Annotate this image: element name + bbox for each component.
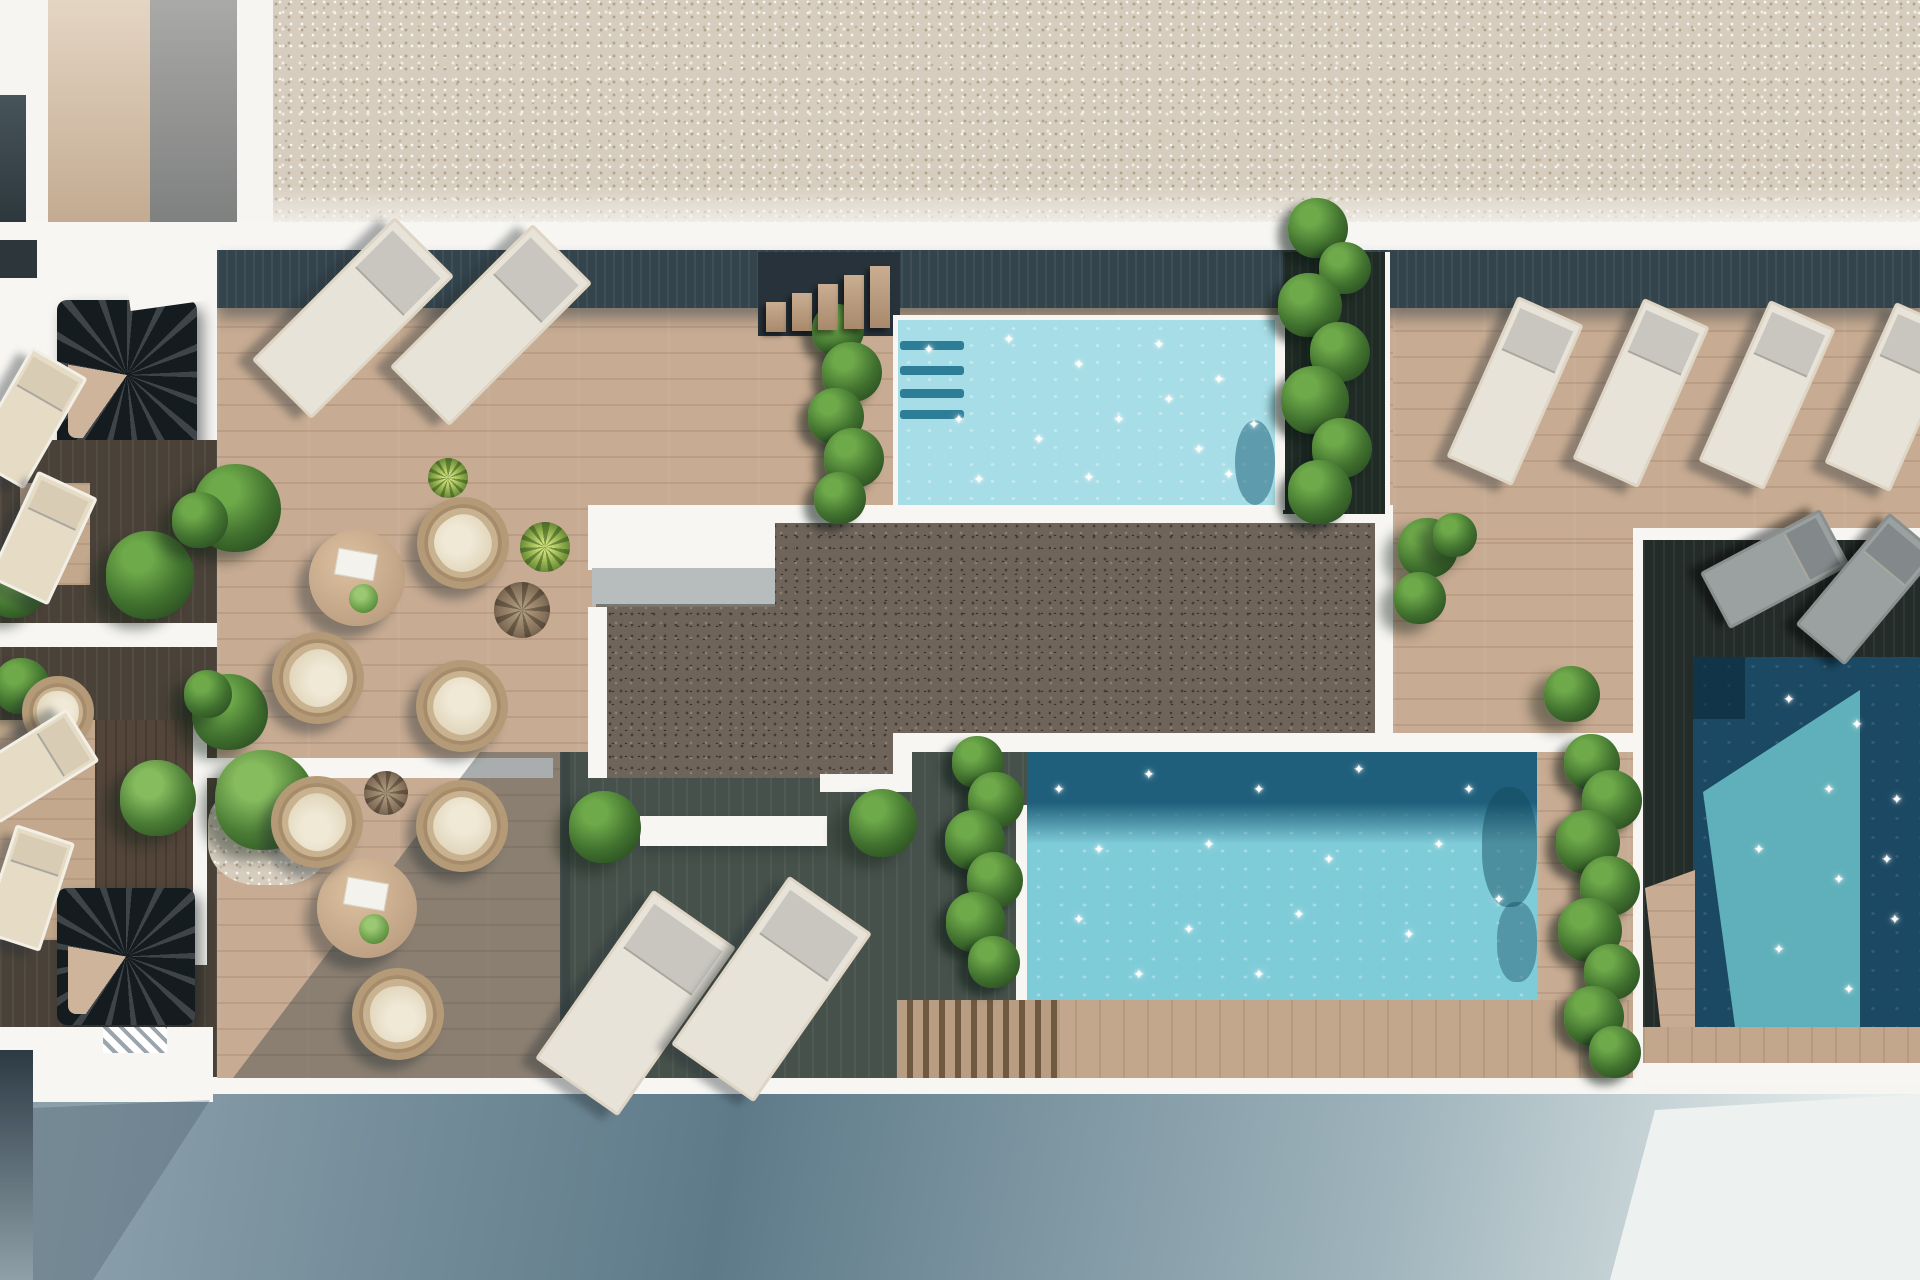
bistro-table (317, 858, 417, 958)
sparkle: ✦ (953, 413, 965, 427)
vine-plant (1589, 1026, 1641, 1078)
table-book (343, 877, 389, 912)
sparkle: ✦ (1133, 968, 1145, 982)
lounger-head-cushion (623, 904, 722, 996)
generated-layer: ✦✦✦✦✦✦✦✦✦✦✦✦✦✦✦✦✦✦✦✦✦✦✦✦✦✦✦✦✦✦✦✦✦✦✦✦✦✦✦✦ (0, 0, 1920, 1280)
bistro-table (309, 530, 405, 626)
sparkle: ✦ (1833, 873, 1845, 887)
aloe-plant (428, 458, 468, 498)
sparkle: ✦ (1083, 471, 1095, 485)
sparkle: ✦ (1003, 333, 1015, 347)
lounger-head-cushion (1753, 312, 1825, 378)
vine-plant (968, 936, 1020, 988)
sun-lounger (0, 347, 88, 490)
bush (1394, 572, 1446, 624)
sparkle: ✦ (1891, 793, 1903, 807)
stair-tread (792, 293, 812, 331)
sparkle: ✦ (1033, 433, 1045, 447)
sparkle: ✦ (1093, 843, 1105, 857)
lounger-head-cushion (1864, 523, 1920, 585)
sparkle: ✦ (1433, 838, 1445, 852)
sparkle: ✦ (973, 473, 985, 487)
sparkle: ✦ (1143, 768, 1155, 782)
sparkle: ✦ (1823, 783, 1835, 797)
chair-cushion (277, 782, 356, 861)
lounger-head-cushion (493, 237, 579, 323)
sun-lounger (1698, 300, 1835, 490)
sparkle: ✦ (1353, 763, 1365, 777)
sparkle: ✦ (1073, 358, 1085, 372)
wicker-chair (352, 968, 444, 1060)
sun-lounger (0, 824, 75, 952)
sparkle: ✦ (1293, 908, 1305, 922)
bush (106, 531, 194, 619)
sparkle: ✦ (1843, 983, 1855, 997)
table-plant (349, 584, 378, 613)
vine-plant (814, 472, 866, 524)
lounger-head-cushion (17, 357, 78, 412)
chair-cushion (278, 638, 357, 717)
sparkle: ✦ (1253, 968, 1265, 982)
stair-tread (818, 284, 838, 330)
bush (120, 760, 196, 836)
sparkle: ✦ (1783, 693, 1795, 707)
table-plant (359, 914, 389, 944)
chair-cushion (423, 667, 501, 745)
lounger-head-cushion (759, 890, 858, 982)
sparkle: ✦ (1493, 893, 1505, 907)
lounger-head-cushion (1501, 308, 1573, 374)
sparkle: ✦ (1113, 413, 1125, 427)
sparkle: ✦ (1163, 393, 1175, 407)
sparkle: ✦ (1203, 838, 1215, 852)
rooftop-render: ✦✦✦✦✦✦✦✦✦✦✦✦✦✦✦✦✦✦✦✦✦✦✦✦✦✦✦✦✦✦✦✦✦✦✦✦✦✦✦✦ (0, 0, 1920, 1280)
vine-plant (1288, 460, 1352, 524)
wicker-chair (416, 660, 508, 752)
sparkle: ✦ (1193, 443, 1205, 457)
sparkle: ✦ (1889, 913, 1901, 927)
lounger-head-cushion (355, 230, 441, 316)
bush (184, 670, 232, 718)
sun-lounger (1824, 302, 1920, 492)
table-book (334, 548, 378, 582)
bush (1544, 666, 1600, 722)
stair-tread (844, 275, 864, 329)
sparkle: ✦ (1183, 923, 1195, 937)
chair-cushion (422, 786, 501, 865)
lounger-head-cushion (11, 833, 67, 877)
sun-lounger (0, 471, 98, 606)
chair-cushion (424, 504, 502, 582)
wicker-chair (416, 780, 508, 872)
bush (569, 791, 641, 863)
sparkle: ✦ (1073, 913, 1085, 927)
sparkle: ✦ (923, 343, 935, 357)
lounger-head-cushion (1879, 314, 1920, 380)
sparkle: ✦ (1403, 928, 1415, 942)
dry-plant (494, 582, 550, 638)
stair-tread (870, 266, 890, 328)
sparkle: ✦ (1253, 783, 1265, 797)
lounger-head-cushion (1784, 518, 1840, 580)
stair-tread (766, 302, 786, 332)
bush (172, 492, 228, 548)
bush (849, 789, 917, 857)
wicker-chair (417, 497, 509, 589)
wicker-chair (272, 632, 364, 724)
lounger-head-cushion (28, 480, 89, 531)
pool-step-bar (900, 389, 964, 398)
wicker-chair (271, 776, 363, 868)
lounger-head-cushion (1627, 310, 1699, 376)
sun-lounger (1446, 296, 1583, 486)
sparkle: ✦ (1881, 853, 1893, 867)
sparkle: ✦ (1773, 943, 1785, 957)
aloe-plant (520, 522, 570, 572)
sparkle: ✦ (1248, 418, 1260, 432)
bush (1433, 513, 1477, 557)
pool-step-bar (900, 366, 964, 375)
sparkle: ✦ (1153, 338, 1165, 352)
chair-cushion (368, 984, 429, 1045)
dry-plant (364, 771, 408, 815)
sparkle: ✦ (1323, 853, 1335, 867)
sparkle: ✦ (1753, 843, 1765, 857)
sparkle: ✦ (1213, 373, 1225, 387)
sparkle: ✦ (1851, 718, 1863, 732)
sparkle: ✦ (1463, 783, 1475, 797)
sparkle: ✦ (1053, 783, 1065, 797)
sun-lounger (1572, 298, 1709, 488)
sparkle: ✦ (1223, 468, 1235, 482)
